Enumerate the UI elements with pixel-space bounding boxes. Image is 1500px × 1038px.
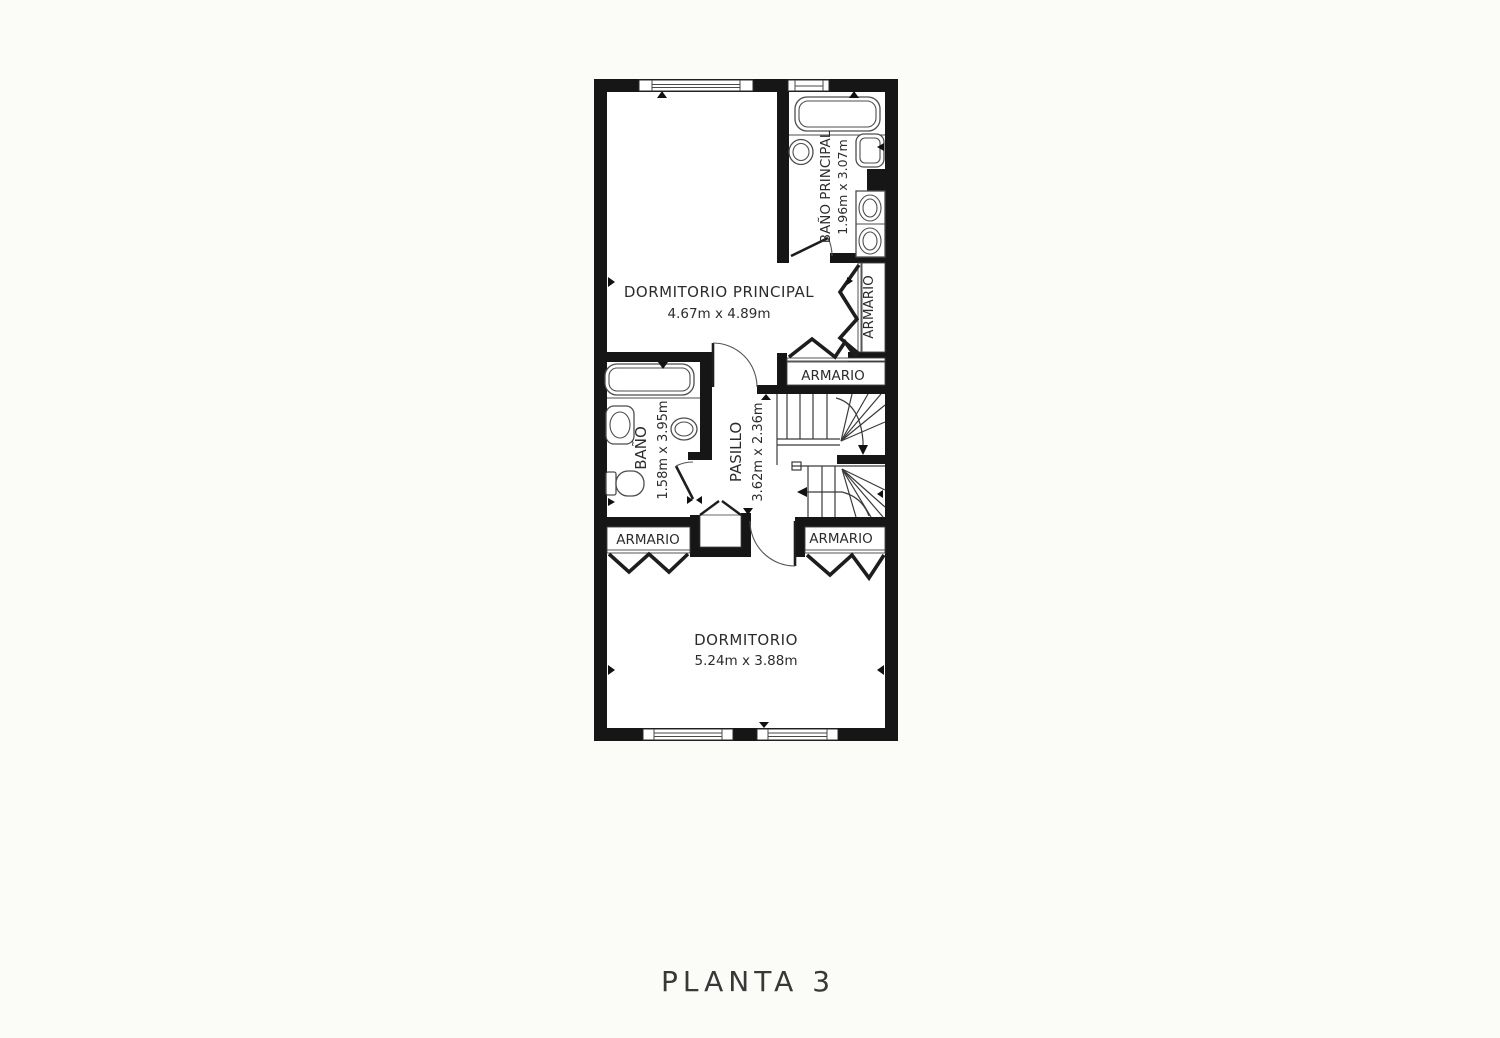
label-dormitorio-dims: 5.24m x 3.88m [695,653,798,669]
floor-plan: DORMITORIO PRINCIPAL 4.67m x 4.89m BAÑO … [0,0,1500,1038]
floor-plan-page: DORMITORIO PRINCIPAL 4.67m x 4.89m BAÑO … [0,0,1500,1038]
bidet [671,418,697,440]
label-bano: BAÑO [631,426,650,470]
window-top-dormitorio-principal [639,80,753,91]
window-bottom-left [643,729,733,740]
label-bano-dims: 1.58m x 3.95m [656,400,671,499]
label-dormitorio-principal-dims: 4.67m x 4.89m [668,306,771,322]
label-bano-principal-dims: 1.96m x 3.07m [835,139,850,234]
toilet [789,140,813,165]
label-pasillo: PASILLO [727,422,745,482]
plan-title: PLANTA 3 [661,965,835,998]
label-armario-se: ARMARIO [809,531,873,547]
label-armario-sw: ARMARIO [616,532,680,548]
label-armario-hall: ARMARIO [801,368,865,384]
sink [606,406,634,444]
bathtub [605,364,700,398]
window-top-bano-principal [788,80,829,91]
label-dormitorio: DORMITORIO [694,631,798,649]
shower-tray [856,134,884,167]
label-pasillo-dims: 3.62m x 2.36m [751,402,766,501]
toilet [606,471,644,496]
label-armario-east: ARMARIO [861,275,877,339]
bathtub [789,97,885,135]
label-bano-principal: BAÑO PRINCIPAL [817,130,834,243]
double-sink-vanity [856,191,885,257]
label-dormitorio-principal: DORMITORIO PRINCIPAL [624,283,814,301]
window-bottom-right [757,729,838,740]
